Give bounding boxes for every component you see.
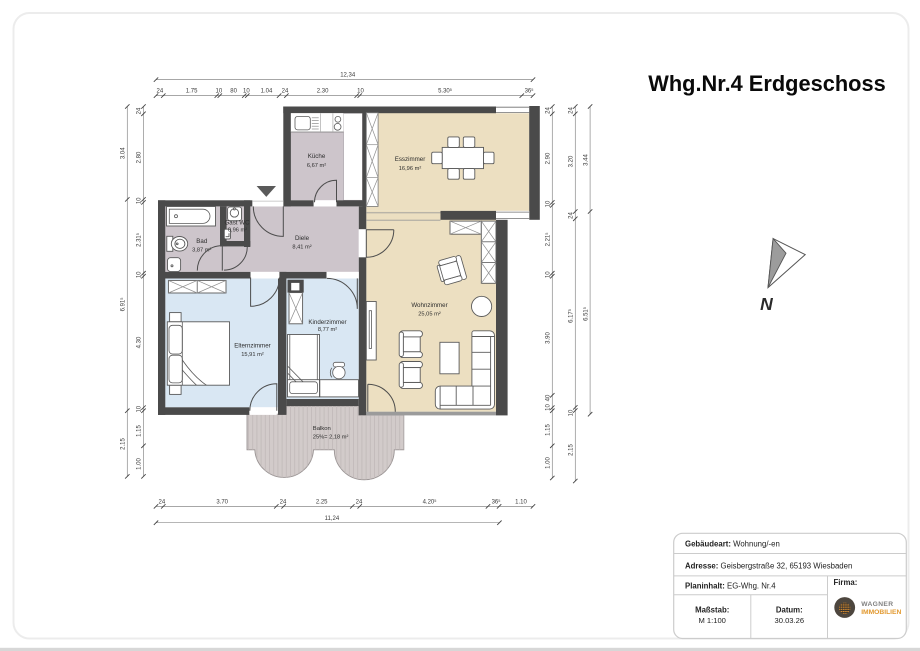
svg-text:24: 24 <box>280 500 287 506</box>
svg-text:6,67 m²: 6,67 m² <box>307 163 326 169</box>
svg-text:Adresse: Geisbergstraße 32, 65: Adresse: Geisbergstraße 32, 65193 Wiesba… <box>685 562 852 571</box>
svg-text:1.10: 1.10 <box>515 500 527 506</box>
svg-text:3.90: 3.90 <box>546 332 552 344</box>
svg-text:24: 24 <box>137 107 143 114</box>
svg-text:1.00: 1.00 <box>137 458 143 470</box>
svg-text:8,77 m²: 8,77 m² <box>318 327 337 333</box>
svg-text:Planinhalt: EG-Whg. Nr.4: Planinhalt: EG-Whg. Nr.4 <box>685 581 776 590</box>
svg-text:Maßstab:: Maßstab: <box>695 606 729 615</box>
svg-text:WAGNER: WAGNER <box>861 601 893 608</box>
svg-text:2.15: 2.15 <box>120 438 126 450</box>
svg-text:11,24: 11,24 <box>325 516 340 522</box>
svg-text:Firma:: Firma: <box>834 578 858 587</box>
svg-text:24: 24 <box>159 500 166 506</box>
svg-text:Esszimmer: Esszimmer <box>395 156 426 163</box>
svg-text:1.15: 1.15 <box>137 425 143 437</box>
svg-text:15,91 m²: 15,91 m² <box>241 352 264 358</box>
svg-text:2.25: 2.25 <box>316 500 328 506</box>
svg-text:24: 24 <box>356 500 363 506</box>
svg-text:Diele: Diele <box>295 235 310 242</box>
svg-text:10: 10 <box>137 197 143 204</box>
svg-text:1.15: 1.15 <box>546 424 552 436</box>
svg-text:10: 10 <box>357 89 364 95</box>
svg-text:24: 24 <box>157 89 164 95</box>
svg-text:Elternzimmer: Elternzimmer <box>234 343 270 350</box>
svg-text:24: 24 <box>569 212 575 219</box>
svg-text:0,96 m²: 0,96 m² <box>228 228 247 234</box>
svg-text:10: 10 <box>546 200 552 207</box>
svg-text:Wohnzimmer: Wohnzimmer <box>411 302 447 309</box>
svg-text:10: 10 <box>546 271 552 278</box>
svg-text:Gebäudeart: Wohnung/-en: Gebäudeart: Wohnung/-en <box>685 540 780 549</box>
svg-text:M 1:100: M 1:100 <box>698 616 725 625</box>
svg-text:3.04: 3.04 <box>120 147 126 159</box>
svg-text:3.70: 3.70 <box>216 500 228 506</box>
svg-text:Datum:: Datum: <box>776 606 803 615</box>
svg-text:10: 10 <box>546 404 552 411</box>
svg-text:12,34: 12,34 <box>340 73 356 79</box>
svg-text:Gast WC: Gast WC <box>224 220 250 227</box>
svg-text:Balkon: Balkon <box>313 426 331 432</box>
svg-text:2.15: 2.15 <box>569 444 575 456</box>
svg-text:10: 10 <box>216 89 223 95</box>
svg-text:IMMOBILIEN: IMMOBILIEN <box>861 609 901 616</box>
svg-text:10: 10 <box>137 405 143 412</box>
svg-text:3.44: 3.44 <box>583 154 589 166</box>
svg-text:Bad: Bad <box>196 238 208 245</box>
svg-text:2.30: 2.30 <box>317 89 329 95</box>
svg-text:80: 80 <box>230 89 237 95</box>
svg-text:3.20: 3.20 <box>569 155 575 167</box>
svg-text:24: 24 <box>546 107 552 114</box>
svg-text:2.90: 2.90 <box>546 152 552 164</box>
svg-text:Küche: Küche <box>308 153 326 160</box>
svg-text:10: 10 <box>243 89 250 95</box>
svg-text:24: 24 <box>282 89 289 95</box>
svg-text:25%= 2,18 m²: 25%= 2,18 m² <box>313 435 349 441</box>
svg-text:30.03.26: 30.03.26 <box>775 616 805 625</box>
svg-text:N: N <box>760 294 773 314</box>
svg-text:10: 10 <box>137 271 143 278</box>
svg-text:1.75: 1.75 <box>186 89 198 95</box>
svg-text:10: 10 <box>569 409 575 416</box>
svg-text:1.00: 1.00 <box>546 457 552 469</box>
svg-text:Kinderzimmer: Kinderzimmer <box>308 319 346 326</box>
svg-text:2.80: 2.80 <box>137 151 143 163</box>
svg-text:25,05 m²: 25,05 m² <box>418 311 441 317</box>
svg-text:4.30: 4.30 <box>137 336 143 348</box>
svg-text:40: 40 <box>546 394 552 401</box>
svg-text:8,41 m²: 8,41 m² <box>292 245 311 251</box>
svg-text:24: 24 <box>569 107 575 114</box>
svg-text:16,96 m²: 16,96 m² <box>399 166 422 172</box>
svg-text:Whg.Nr.4 Erdgeschoss: Whg.Nr.4 Erdgeschoss <box>648 71 885 96</box>
svg-text:1.04: 1.04 <box>261 89 273 95</box>
svg-text:3,87 m²: 3,87 m² <box>192 247 211 253</box>
